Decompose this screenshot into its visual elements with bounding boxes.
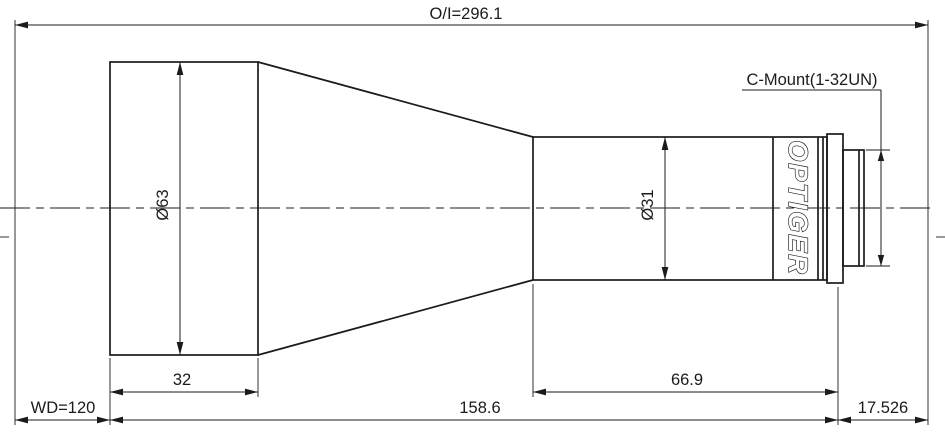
mount-flange [827, 134, 843, 283]
brand-text: OPTIGER [783, 140, 813, 276]
dimension-working-distance: WD=120 [15, 399, 110, 420]
dimension-mid-length: 158.6 [110, 399, 838, 420]
cone-bottom-edge [258, 280, 533, 355]
flange-distance-value: 17.526 [858, 399, 908, 417]
front-barrel [110, 62, 258, 355]
thread-dim-arrow-down [878, 255, 884, 266]
mid-length-value: 158.6 [459, 399, 500, 417]
dimension-front-length: 32 [110, 371, 258, 392]
barrel-diameter-value: Ø31 [639, 189, 657, 220]
barrel-length-value: 66.9 [671, 371, 703, 389]
lens-outline [110, 62, 864, 355]
dimension-flange-distance: 17.526 [838, 399, 928, 420]
front-length-value: 32 [173, 371, 191, 389]
brand-label: OPTIGER [783, 140, 813, 276]
working-distance-value: WD=120 [31, 399, 96, 417]
overall-oi-value: O/I=296.1 [430, 5, 503, 23]
drawing-canvas: OPTIGER O/I=296.1 Ø63 Ø31 C-Mount(1-32UN… [0, 0, 945, 441]
dimension-barrel-length: 66.9 [533, 371, 838, 392]
dimension-front-diameter: Ø63 [154, 62, 180, 355]
c-mount-label: C-Mount(1-32UN) [746, 71, 877, 89]
c-mount-callout: C-Mount(1-32UN) [742, 71, 890, 266]
cone-top-edge [258, 62, 533, 137]
thread-dim-arrow-up [878, 150, 884, 161]
dimension-barrel-diameter: Ø31 [639, 137, 665, 280]
lens-technical-drawing: OPTIGER O/I=296.1 Ø63 Ø31 C-Mount(1-32UN… [0, 0, 945, 441]
front-diameter-value: Ø63 [154, 189, 172, 220]
